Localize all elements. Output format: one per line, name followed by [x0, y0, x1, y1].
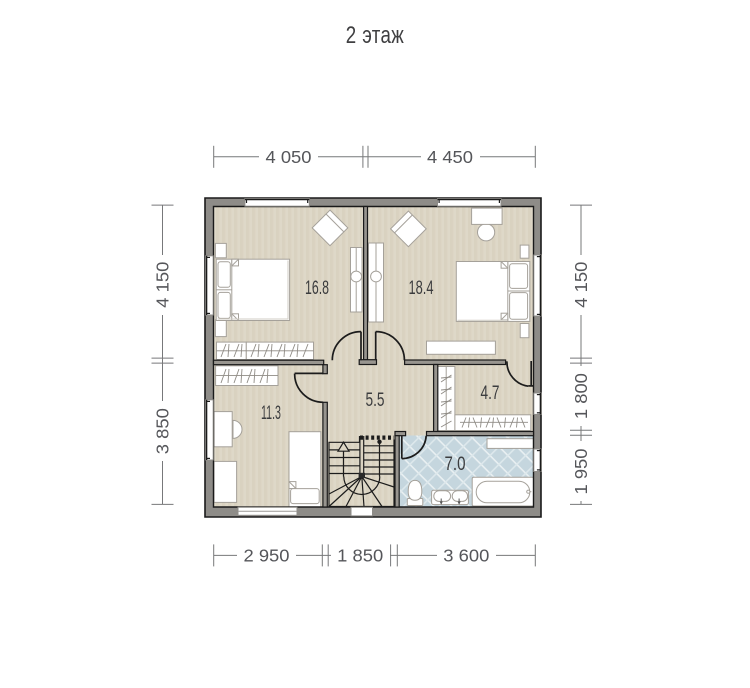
svg-text:4 450: 4 450 [427, 147, 473, 167]
svg-text:11.3: 11.3 [261, 402, 281, 424]
svg-text:1 800: 1 800 [571, 373, 591, 419]
svg-text:16.8: 16.8 [305, 277, 329, 299]
svg-text:3 600: 3 600 [443, 545, 489, 565]
svg-text:4 150: 4 150 [153, 261, 173, 307]
svg-text:1 950: 1 950 [571, 448, 591, 494]
svg-text:18.4: 18.4 [409, 277, 434, 299]
svg-text:5.5: 5.5 [366, 389, 385, 411]
svg-text:2 950: 2 950 [244, 545, 290, 565]
svg-text:4.7: 4.7 [481, 382, 500, 404]
svg-text:1 850: 1 850 [337, 545, 383, 565]
svg-text:7.0: 7.0 [445, 453, 466, 475]
svg-text:3 850: 3 850 [153, 408, 173, 454]
svg-text:4 150: 4 150 [571, 261, 591, 307]
svg-text:4 050: 4 050 [266, 147, 312, 167]
